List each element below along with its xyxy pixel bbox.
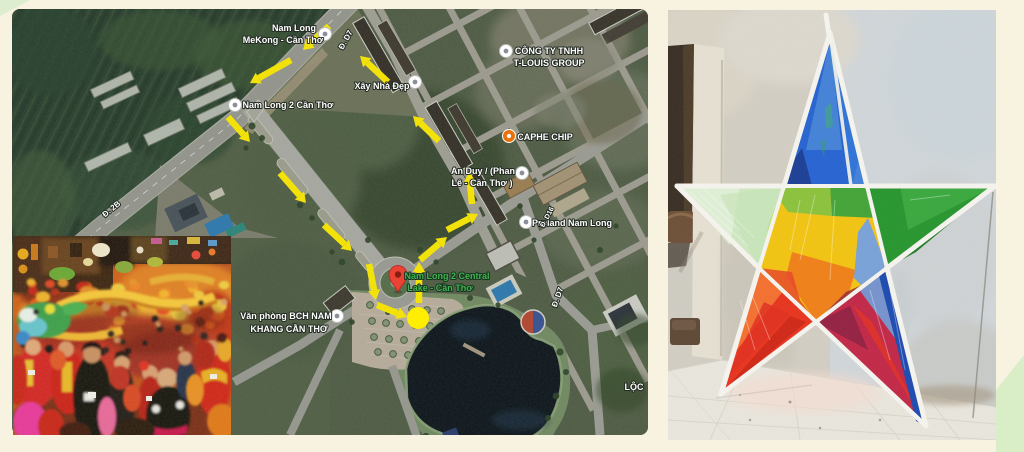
svg-text:Văn phòng BCH NAM: Văn phòng BCH NAM [240,311,332,321]
svg-text:Nam Long: Nam Long [272,23,316,33]
svg-text:Lake - Cần Thơ: Lake - Cần Thơ [407,283,473,293]
svg-text:An Duy / (Phan: An Duy / (Phan [451,166,515,176]
svg-text:MeKong - Cần Thơ: MeKong - Cần Thơ [243,35,324,45]
svg-text:CÔNG TY TNHH: CÔNG TY TNHH [515,45,583,56]
svg-text:Lê - Cần Thơ ): Lê - Cần Thơ ) [452,178,513,188]
svg-text:Xây Nhà Đẹp: Xây Nhà Đẹp [354,81,410,91]
svg-text:CAPHE CHIP: CAPHE CHIP [517,132,573,142]
svg-text:Nam Long 2 Cần Thơ: Nam Long 2 Cần Thơ [243,100,335,110]
svg-text:T-LOUIS GROUP: T-LOUIS GROUP [513,58,584,68]
svg-text:KHANG CẦN THƠ: KHANG CẦN THƠ [250,324,327,334]
svg-text:LỘC: LỘC [625,381,644,392]
svg-text:Nam Long 2 Central: Nam Long 2 Central [404,271,489,281]
